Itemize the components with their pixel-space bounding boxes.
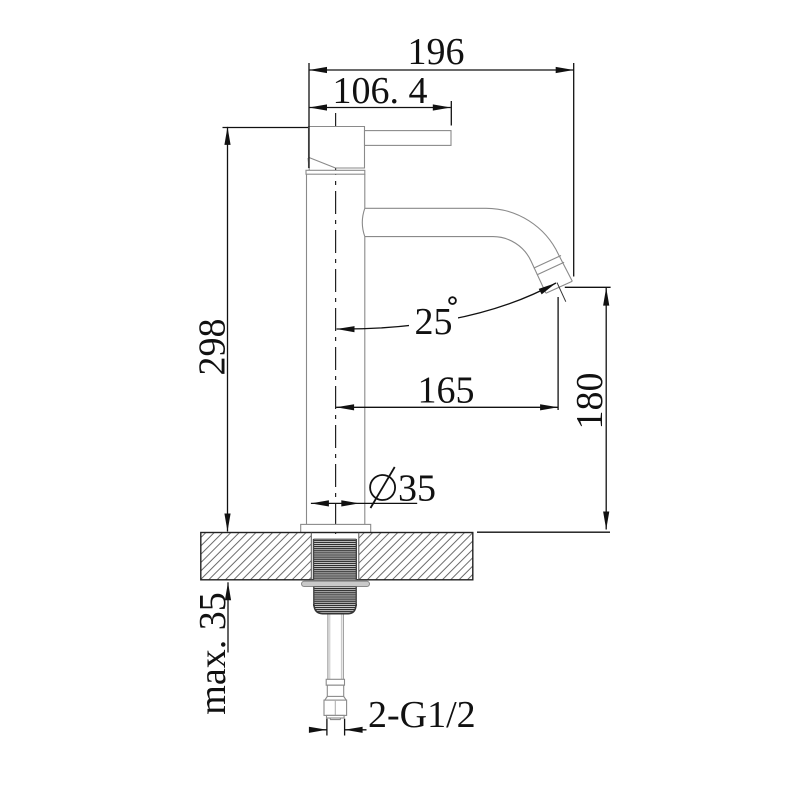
svg-text:298: 298 bbox=[192, 319, 234, 376]
svg-text:165: 165 bbox=[418, 370, 475, 412]
svg-text:35: 35 bbox=[398, 468, 436, 510]
svg-text:2-G1/2: 2-G1/2 bbox=[368, 694, 476, 736]
svg-text:25: 25 bbox=[415, 301, 453, 343]
svg-text:106. 4: 106. 4 bbox=[333, 70, 428, 112]
svg-text:196: 196 bbox=[408, 31, 465, 73]
svg-text:180: 180 bbox=[569, 373, 611, 430]
svg-text:max. 35: max. 35 bbox=[192, 592, 234, 714]
